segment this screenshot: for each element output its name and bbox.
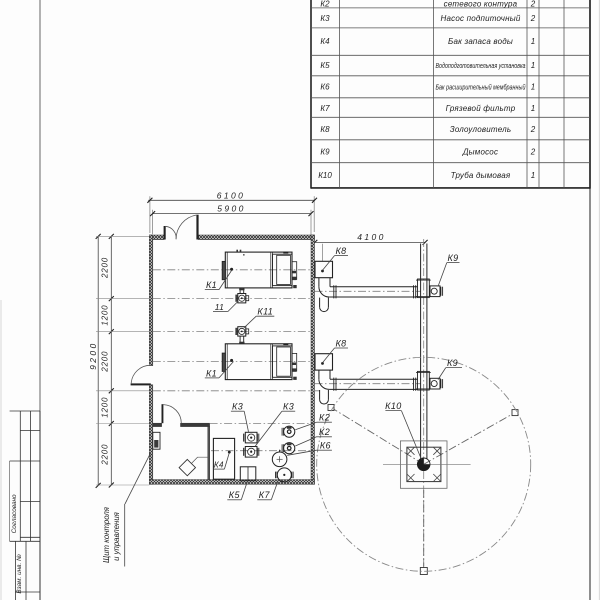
svg-text:К9: К9 <box>447 358 458 368</box>
svg-text:6100: 6100 <box>217 190 246 200</box>
svg-text:К10: К10 <box>385 401 402 411</box>
svg-text:сетевого контура: сетевого контура <box>444 0 518 9</box>
svg-text:К8: К8 <box>320 125 330 134</box>
svg-text:Взам. инв. №: Взам. инв. № <box>16 554 23 594</box>
svg-text:К1: К1 <box>206 280 217 290</box>
svg-text:2200: 2200 <box>100 444 109 466</box>
svg-text:Водоподготовительная установка: Водоподготовительная установка <box>436 62 526 70</box>
svg-text:2200: 2200 <box>100 351 109 373</box>
svg-text:1200: 1200 <box>100 397 109 418</box>
svg-text:К2: К2 <box>319 427 330 437</box>
svg-text:Насос подпиточный: Насос подпиточный <box>441 14 521 23</box>
svg-text:К10: К10 <box>318 171 332 180</box>
svg-text:К8: К8 <box>335 338 346 348</box>
svg-text:К6: К6 <box>320 82 330 91</box>
svg-text:К7: К7 <box>259 490 271 500</box>
svg-text:К2: К2 <box>320 0 330 9</box>
svg-text:2: 2 <box>530 125 536 134</box>
svg-text:К3: К3 <box>320 14 330 23</box>
svg-text:5900: 5900 <box>217 204 246 214</box>
svg-text:К2: К2 <box>319 413 330 423</box>
svg-text:К8: К8 <box>335 246 346 256</box>
svg-text:К11: К11 <box>257 307 273 317</box>
svg-text:1: 1 <box>531 61 535 70</box>
svg-text:2: 2 <box>530 148 536 157</box>
svg-text:2200: 2200 <box>100 257 109 279</box>
svg-text:9200: 9200 <box>88 341 98 370</box>
svg-text:К9: К9 <box>447 253 458 263</box>
svg-text:2: 2 <box>530 14 536 23</box>
svg-text:1: 1 <box>531 82 535 91</box>
svg-text:К3: К3 <box>283 402 294 412</box>
svg-text:К9: К9 <box>320 148 330 157</box>
svg-text:11: 11 <box>215 302 225 312</box>
svg-text:1200: 1200 <box>100 305 109 326</box>
svg-text:Грязевой фильтр: Грязевой фильтр <box>446 104 516 113</box>
svg-text:Щит контроля: Щит контроля <box>102 506 111 563</box>
svg-text:Золоуловитель: Золоуловитель <box>450 125 512 134</box>
svg-text:К5: К5 <box>229 490 241 500</box>
svg-text:и управления: и управления <box>112 511 121 561</box>
svg-text:Бак расширительный мембранный: Бак расширительный мембранный <box>436 83 526 91</box>
svg-text:Труба дымовая: Труба дымовая <box>451 171 511 180</box>
svg-text:Согласовано: Согласовано <box>11 494 18 533</box>
svg-text:Бак запаса воды: Бак запаса воды <box>448 37 513 46</box>
svg-text:2: 2 <box>530 0 536 9</box>
svg-text:К6: К6 <box>320 441 331 451</box>
svg-text:1: 1 <box>531 171 535 180</box>
svg-text:Дымосос: Дымосос <box>462 148 498 157</box>
svg-text:1: 1 <box>531 104 535 113</box>
svg-text:К4: К4 <box>214 461 224 470</box>
svg-text:1: 1 <box>531 37 535 46</box>
svg-text:К3: К3 <box>232 402 243 412</box>
svg-text:К7: К7 <box>320 104 330 113</box>
svg-text:К5: К5 <box>320 61 330 70</box>
svg-text:К4: К4 <box>320 37 330 46</box>
svg-text:4100: 4100 <box>357 232 386 242</box>
svg-text:К1: К1 <box>206 368 217 378</box>
